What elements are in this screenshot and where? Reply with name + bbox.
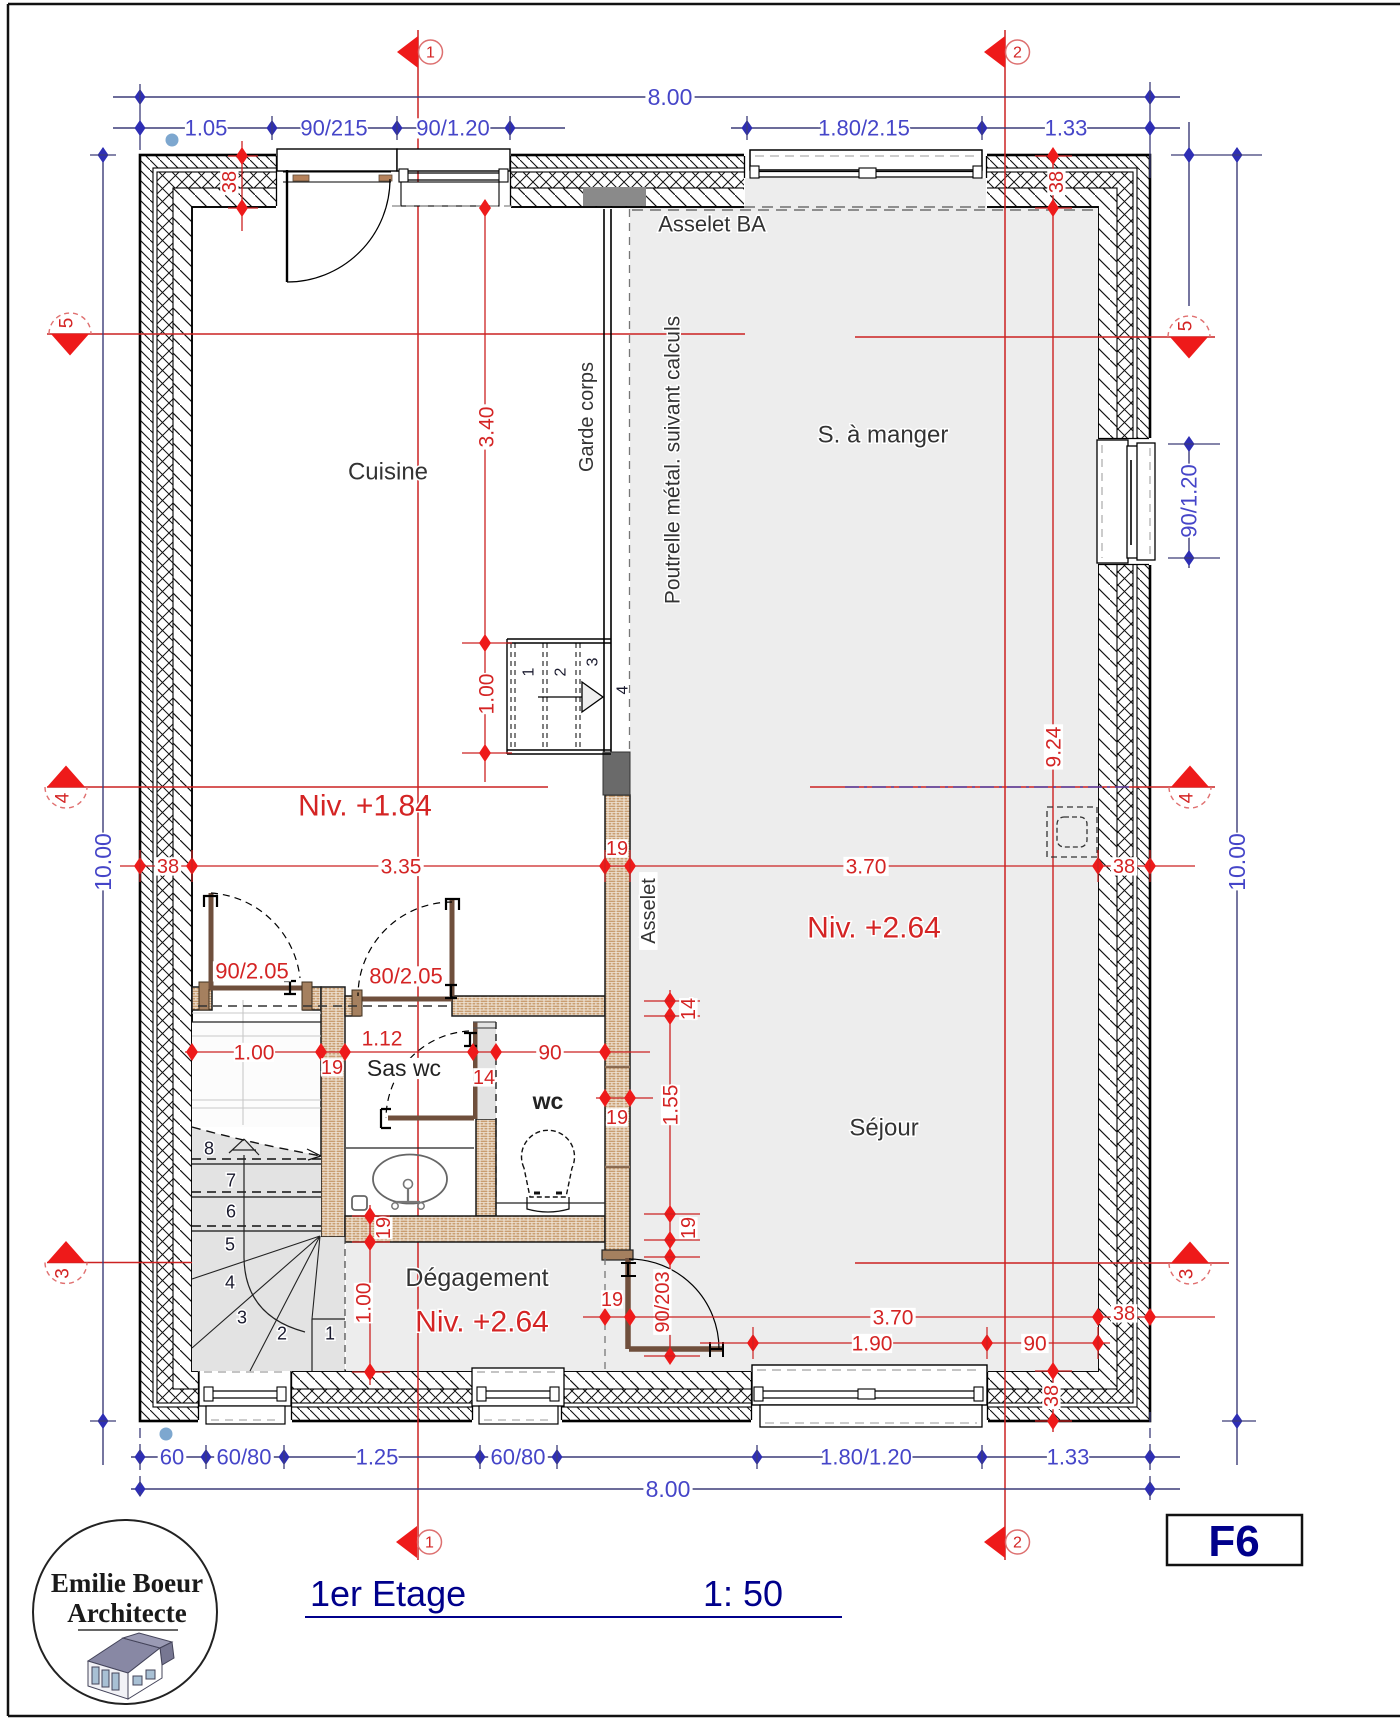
svg-text:19: 19 <box>373 1217 395 1239</box>
svg-text:3: 3 <box>237 1307 247 1327</box>
svg-text:90/203: 90/203 <box>652 1271 674 1332</box>
svg-text:19: 19 <box>678 1217 700 1239</box>
svg-text:3: 3 <box>585 657 602 666</box>
svg-text:F6: F6 <box>1208 1517 1259 1566</box>
svg-text:38: 38 <box>219 171 241 193</box>
svg-text:1: 1 <box>521 667 538 676</box>
svg-text:60/80: 60/80 <box>490 1445 545 1470</box>
svg-text:3.70: 3.70 <box>873 1306 914 1329</box>
svg-text:90: 90 <box>1023 1332 1046 1355</box>
svg-text:90/1.20: 90/1.20 <box>1177 464 1202 537</box>
svg-text:38: 38 <box>1113 856 1135 878</box>
svg-text:Architecte: Architecte <box>67 1598 186 1628</box>
svg-text:10.00: 10.00 <box>90 833 116 891</box>
svg-text:2: 2 <box>1013 45 1022 62</box>
svg-text:19: 19 <box>601 1289 623 1311</box>
svg-text:Asselet BA: Asselet BA <box>658 212 766 237</box>
svg-text:1.00: 1.00 <box>352 1283 375 1324</box>
svg-text:4: 4 <box>615 685 632 694</box>
svg-text:S. à manger: S. à manger <box>818 421 949 448</box>
svg-text:Niv. +2.64: Niv. +2.64 <box>415 1306 549 1339</box>
svg-text:4: 4 <box>1177 792 1198 803</box>
svg-text:3.70: 3.70 <box>846 855 887 878</box>
svg-text:1.90: 1.90 <box>852 1332 893 1355</box>
svg-text:60: 60 <box>160 1445 184 1470</box>
svg-text:38: 38 <box>1113 1303 1135 1325</box>
svg-text:2: 2 <box>553 667 570 676</box>
svg-text:90/1.20: 90/1.20 <box>416 116 489 141</box>
svg-text:Asselet: Asselet <box>638 878 660 944</box>
svg-text:wc: wc <box>532 1088 564 1114</box>
svg-text:3.35: 3.35 <box>381 855 422 878</box>
svg-text:90/2.05: 90/2.05 <box>215 959 288 984</box>
svg-text:1.55: 1.55 <box>659 1085 682 1126</box>
svg-text:Poutrelle métal. suivant calcu: Poutrelle métal. suivant calculs <box>661 316 684 604</box>
svg-text:19: 19 <box>606 1107 628 1129</box>
svg-text:8: 8 <box>204 1138 214 1158</box>
svg-text:10.00: 10.00 <box>1224 833 1250 891</box>
svg-text:1.12: 1.12 <box>362 1027 403 1050</box>
svg-text:3: 3 <box>53 1268 74 1279</box>
svg-text:Emilie Boeur: Emilie Boeur <box>51 1568 203 1598</box>
svg-text:90: 90 <box>538 1041 561 1064</box>
svg-text:Cuisine: Cuisine <box>348 458 428 485</box>
svg-text:1.00: 1.00 <box>475 674 498 715</box>
svg-text:Dégagement: Dégagement <box>405 1264 548 1292</box>
svg-text:14: 14 <box>473 1067 495 1089</box>
svg-text:38: 38 <box>1041 1385 1063 1407</box>
svg-text:80/2.05: 80/2.05 <box>369 964 442 989</box>
svg-text:3: 3 <box>1177 1269 1198 1280</box>
svg-text:1.33: 1.33 <box>1045 116 1088 141</box>
svg-text:Sas wc: Sas wc <box>367 1055 441 1081</box>
svg-text:5: 5 <box>1176 321 1197 332</box>
svg-text:90/215: 90/215 <box>300 116 367 141</box>
svg-text:1: 1 <box>325 1323 335 1343</box>
svg-text:38: 38 <box>1046 171 1068 193</box>
svg-text:1.80/2.15: 1.80/2.15 <box>818 116 910 141</box>
svg-text:Garde corps: Garde corps <box>576 362 598 472</box>
svg-text:1: 1 <box>425 1535 434 1552</box>
svg-text:1.80/1.20: 1.80/1.20 <box>820 1445 912 1470</box>
svg-text:Séjour: Séjour <box>849 1114 918 1141</box>
svg-text:Niv. +1.84: Niv. +1.84 <box>298 790 432 823</box>
svg-text:19: 19 <box>606 838 628 860</box>
svg-text:1.05: 1.05 <box>185 116 228 141</box>
svg-text:Niv. +2.64: Niv. +2.64 <box>807 912 941 945</box>
svg-text:1: 50: 1: 50 <box>703 1573 783 1614</box>
svg-text:2: 2 <box>277 1323 287 1343</box>
svg-text:1er Etage: 1er Etage <box>310 1573 466 1614</box>
svg-text:1.00: 1.00 <box>234 1041 275 1064</box>
svg-text:60/80: 60/80 <box>216 1445 271 1470</box>
svg-text:3.40: 3.40 <box>475 407 498 448</box>
svg-text:14: 14 <box>678 998 700 1020</box>
svg-text:5: 5 <box>225 1234 235 1254</box>
svg-text:6: 6 <box>226 1201 236 1221</box>
svg-text:8.00: 8.00 <box>646 1476 691 1502</box>
svg-text:1.33: 1.33 <box>1047 1445 1090 1470</box>
svg-text:1: 1 <box>426 45 435 62</box>
svg-text:7: 7 <box>226 1170 236 1190</box>
svg-text:5: 5 <box>57 318 78 329</box>
svg-text:2: 2 <box>1013 1535 1022 1552</box>
svg-text:9.24: 9.24 <box>1042 726 1065 767</box>
svg-text:4: 4 <box>53 792 74 803</box>
svg-text:38: 38 <box>157 856 179 878</box>
svg-text:1.25: 1.25 <box>356 1445 399 1470</box>
svg-text:4: 4 <box>225 1272 235 1292</box>
svg-text:8.00: 8.00 <box>648 84 693 110</box>
svg-text:19: 19 <box>321 1057 343 1079</box>
